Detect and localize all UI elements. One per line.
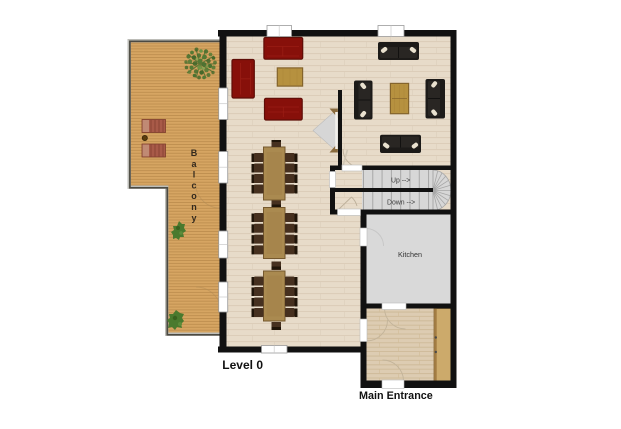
svg-text:n: n	[191, 202, 197, 212]
svg-text:o: o	[191, 191, 197, 201]
svg-text:Level 0: Level 0	[222, 358, 263, 372]
svg-text:c: c	[191, 180, 196, 190]
svg-text:Kitchen: Kitchen	[398, 250, 422, 259]
svg-text:Up -->: Up -->	[391, 178, 410, 185]
svg-text:l: l	[193, 170, 196, 180]
svg-text:Down -->: Down -->	[387, 200, 415, 207]
svg-text:B: B	[191, 148, 198, 158]
svg-text:y: y	[191, 213, 196, 223]
svg-text:Main Entrance: Main Entrance	[359, 390, 433, 402]
